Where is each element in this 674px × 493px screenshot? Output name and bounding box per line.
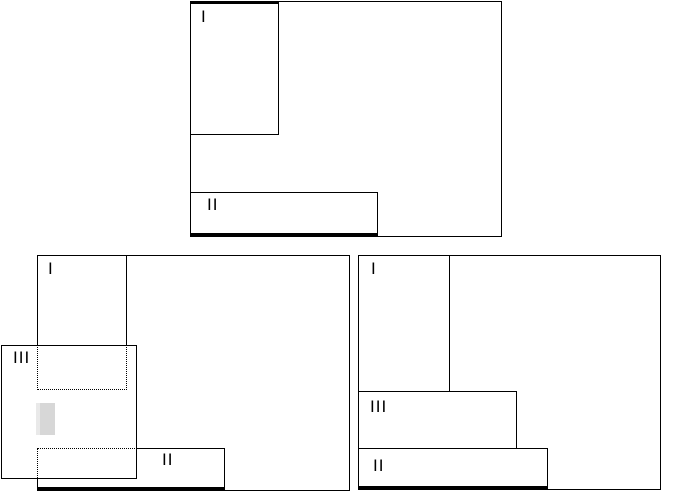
bottom-left-diagram-window-1-hidden-edges (37, 345, 127, 390)
bottom-right-diagram-window-2-label: II (373, 457, 384, 474)
bottom-right-diagram-window-2: II (358, 448, 548, 490)
figure-canvas: I II I II III I III II (0, 0, 674, 493)
top-diagram-window-2-label: II (207, 196, 218, 213)
bottom-left-diagram-window-1-label: I (48, 260, 54, 277)
bottom-right-diagram-window-1: I (358, 255, 450, 391)
bottom-left-diagram-gray-marker (36, 403, 55, 435)
top-diagram-window-1-label: I (201, 8, 207, 25)
top-diagram-window-1: I (190, 1, 279, 135)
bottom-left-diagram-window-2-hidden-edges (37, 448, 137, 478)
top-diagram-window-2: II (190, 192, 378, 237)
bottom-left-diagram-window-2-label: II (162, 451, 173, 468)
bottom-right-diagram-window-3-label: III (370, 398, 387, 415)
bottom-left-diagram-window-3-label: III (13, 349, 30, 366)
bottom-right-diagram-window-1-label: I (371, 260, 377, 277)
bottom-right-diagram-window-3: III (358, 391, 517, 448)
